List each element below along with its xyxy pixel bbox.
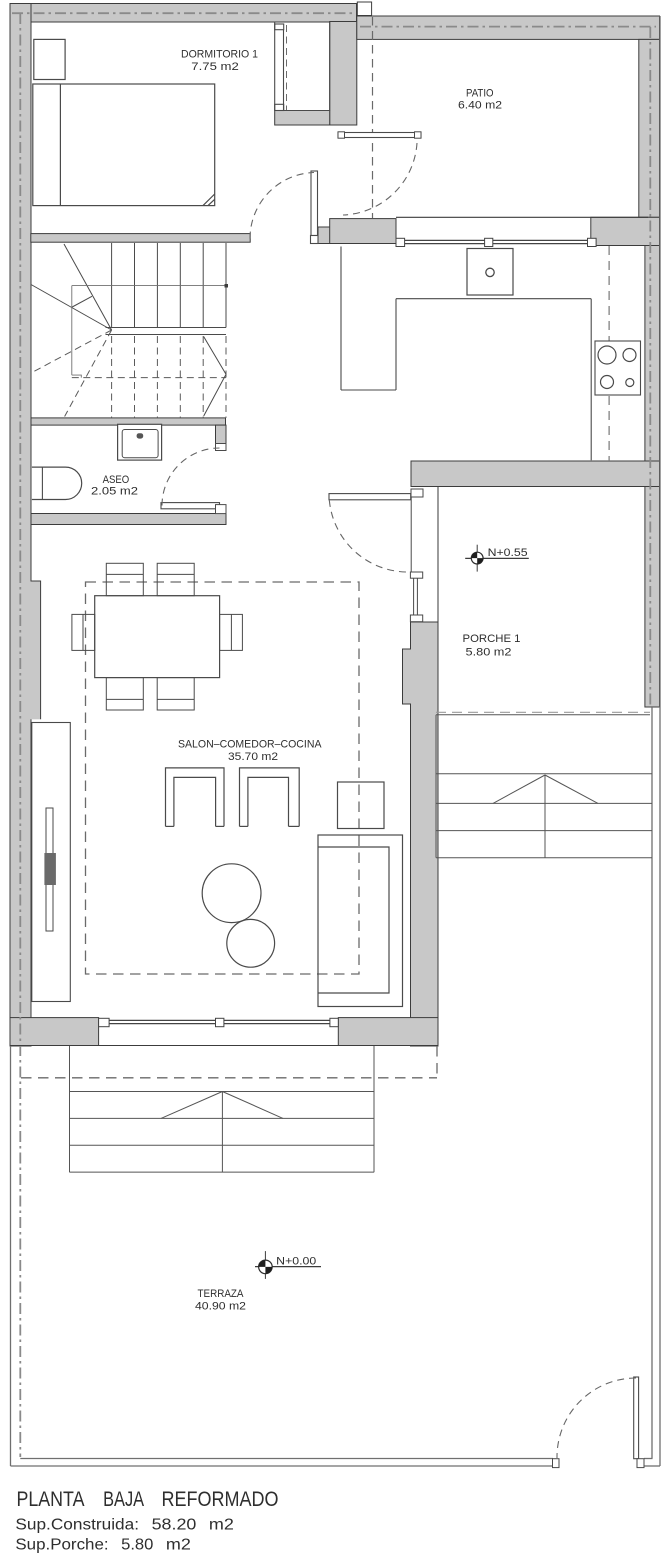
svg-text:5.80 m2: 5.80 m2: [466, 647, 512, 659]
svg-text:N+0.00: N+0.00: [276, 1255, 316, 1267]
svg-text:DORMITORIO 1: DORMITORIO 1: [181, 49, 258, 61]
svg-text:BAJA: BAJA: [103, 1488, 144, 1511]
svg-text:Sup.Construida:: Sup.Construida:: [15, 1517, 139, 1534]
svg-text:2.05 m2: 2.05 m2: [91, 486, 138, 498]
svg-text:SALON–COMEDOR–COCINA: SALON–COMEDOR–COCINA: [178, 739, 322, 751]
svg-text:m2: m2: [209, 1517, 234, 1534]
svg-text:35.70 m2: 35.70 m2: [228, 751, 278, 763]
svg-text:7.75 m2: 7.75 m2: [191, 61, 239, 73]
svg-text:m2: m2: [166, 1537, 191, 1554]
svg-text:Sup.Porche:: Sup.Porche:: [15, 1537, 108, 1554]
svg-text:N+0.55: N+0.55: [488, 547, 528, 559]
svg-text:PLANTA: PLANTA: [17, 1488, 85, 1511]
svg-text:PATIO: PATIO: [466, 88, 494, 100]
svg-text:40.90 m2: 40.90 m2: [195, 1301, 246, 1313]
svg-text:TERRAZA: TERRAZA: [198, 1288, 245, 1300]
svg-text:6.40 m2: 6.40 m2: [458, 100, 502, 112]
svg-text:58.20: 58.20: [152, 1517, 197, 1534]
svg-text:ASEO: ASEO: [103, 474, 130, 486]
svg-text:PORCHE 1: PORCHE 1: [463, 633, 521, 645]
svg-text:5.80: 5.80: [121, 1537, 154, 1554]
svg-text:REFORMADO: REFORMADO: [162, 1488, 279, 1511]
